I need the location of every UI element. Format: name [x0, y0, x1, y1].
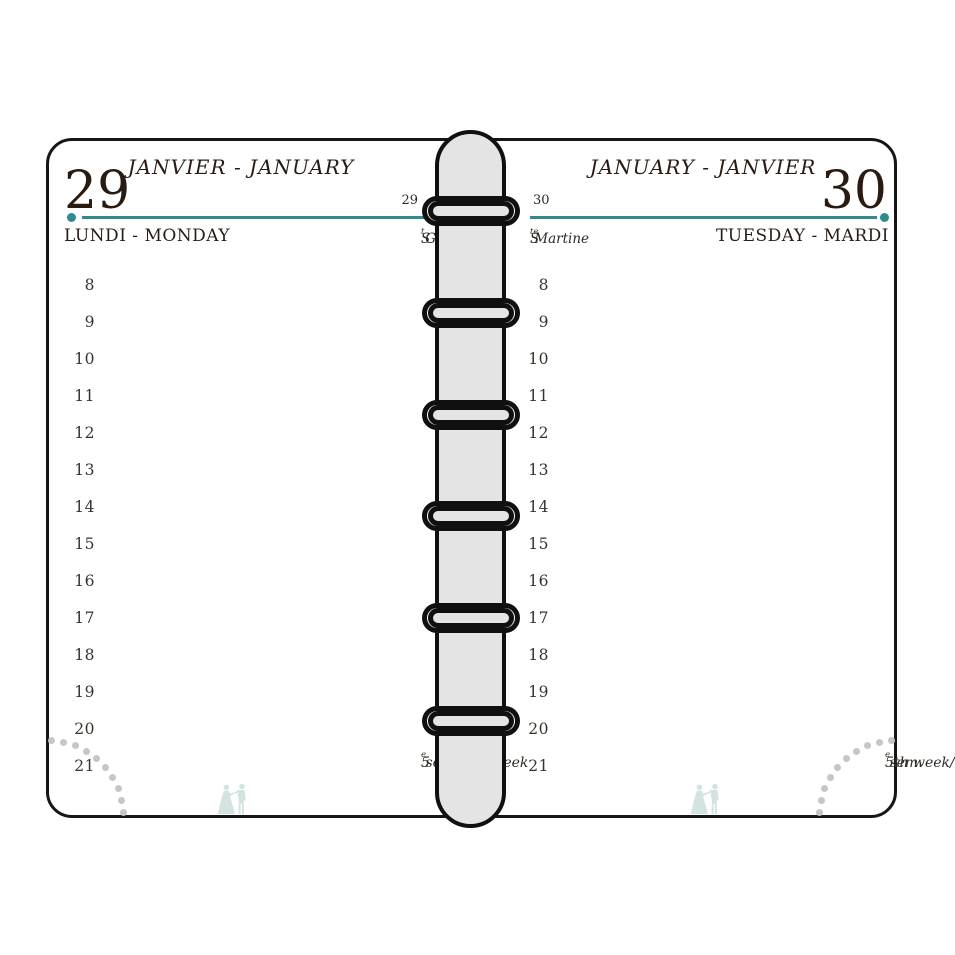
teal-rule-left	[82, 216, 428, 219]
hour-label: 8	[517, 276, 549, 294]
binder-ring-bar	[428, 303, 514, 323]
hour-label: 16	[517, 572, 549, 590]
hour-label: 14	[61, 498, 95, 516]
arc-dot	[60, 739, 67, 746]
arc-dot	[888, 737, 895, 744]
binder-ring-bar	[428, 405, 514, 425]
hour-label: 9	[61, 313, 95, 331]
hour-label: 18	[517, 646, 549, 664]
hour-label: 15	[517, 535, 549, 553]
hour-label: 8	[61, 276, 95, 294]
arc-dot	[115, 785, 122, 792]
binder-ring-bar	[428, 608, 514, 628]
hour-label: 15	[61, 535, 95, 553]
day-of-week-right: TUESDAY - MARDI	[609, 226, 889, 246]
arc-dot	[834, 764, 841, 771]
arc-dot	[102, 764, 109, 771]
arc-dot	[816, 809, 823, 816]
hour-label: 20	[61, 720, 95, 738]
hour-label: 18	[61, 646, 95, 664]
binder-ring-bar	[428, 711, 514, 731]
arc-dot	[48, 737, 55, 744]
teal-dot-right	[880, 213, 889, 222]
hour-label: 10	[517, 350, 549, 368]
dancing-couple-icon	[689, 781, 727, 818]
day-number-right: 30	[751, 165, 887, 217]
dancing-couple-icon	[216, 781, 254, 818]
arc-dot	[827, 774, 834, 781]
hour-label: 17	[517, 609, 549, 627]
binder-ring-bar	[428, 201, 514, 221]
hour-label: 13	[517, 461, 549, 479]
hour-label: 11	[517, 387, 549, 405]
hour-label: 17	[61, 609, 95, 627]
hour-label: 12	[61, 424, 95, 442]
hour-label: 9	[517, 313, 549, 331]
day-number-small-left: 29	[348, 193, 418, 208]
hour-label: 11	[61, 387, 95, 405]
hour-label: 20	[517, 720, 549, 738]
hour-label: 19	[517, 683, 549, 701]
arc-dot	[818, 797, 825, 804]
hour-label: 12	[517, 424, 549, 442]
hour-label: 19	[61, 683, 95, 701]
hour-column-right: 89101112131415161718192021	[517, 141, 549, 815]
teal-rule-right	[530, 216, 877, 219]
hour-label: 13	[61, 461, 95, 479]
hour-label: 10	[61, 350, 95, 368]
arc-dot	[876, 739, 883, 746]
hour-column-left: 89101112131415161718192021	[61, 141, 95, 815]
hour-label: 14	[517, 498, 549, 516]
hour-label: 21	[517, 757, 549, 775]
hour-label: 21	[61, 757, 95, 775]
arc-dot	[109, 774, 116, 781]
arc-dot	[843, 755, 850, 762]
binder-ring-bar	[428, 506, 514, 526]
hour-label: 16	[61, 572, 95, 590]
arc-dot	[853, 748, 860, 755]
arc-dot	[83, 748, 90, 755]
